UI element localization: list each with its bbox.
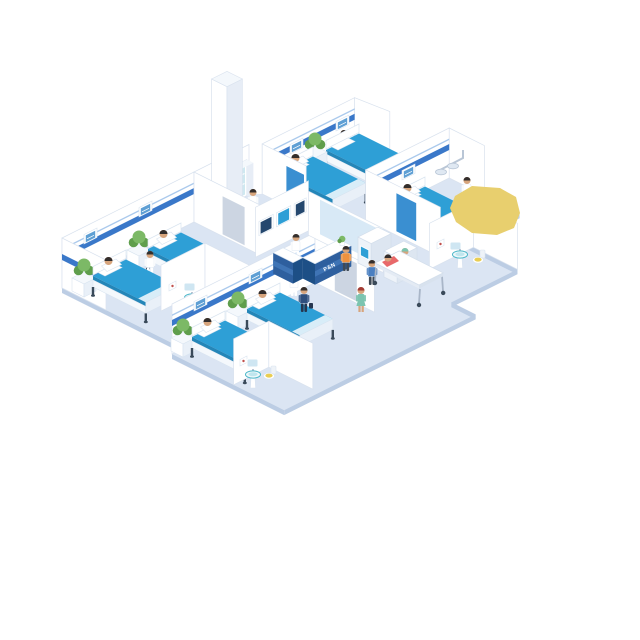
mirror: [247, 359, 258, 367]
hospital-scene: P&N: [0, 0, 640, 640]
mirror: [184, 283, 195, 291]
mirror: [450, 242, 461, 250]
hospital-illustration: P&N: [0, 0, 640, 640]
briefcase: [309, 303, 313, 309]
